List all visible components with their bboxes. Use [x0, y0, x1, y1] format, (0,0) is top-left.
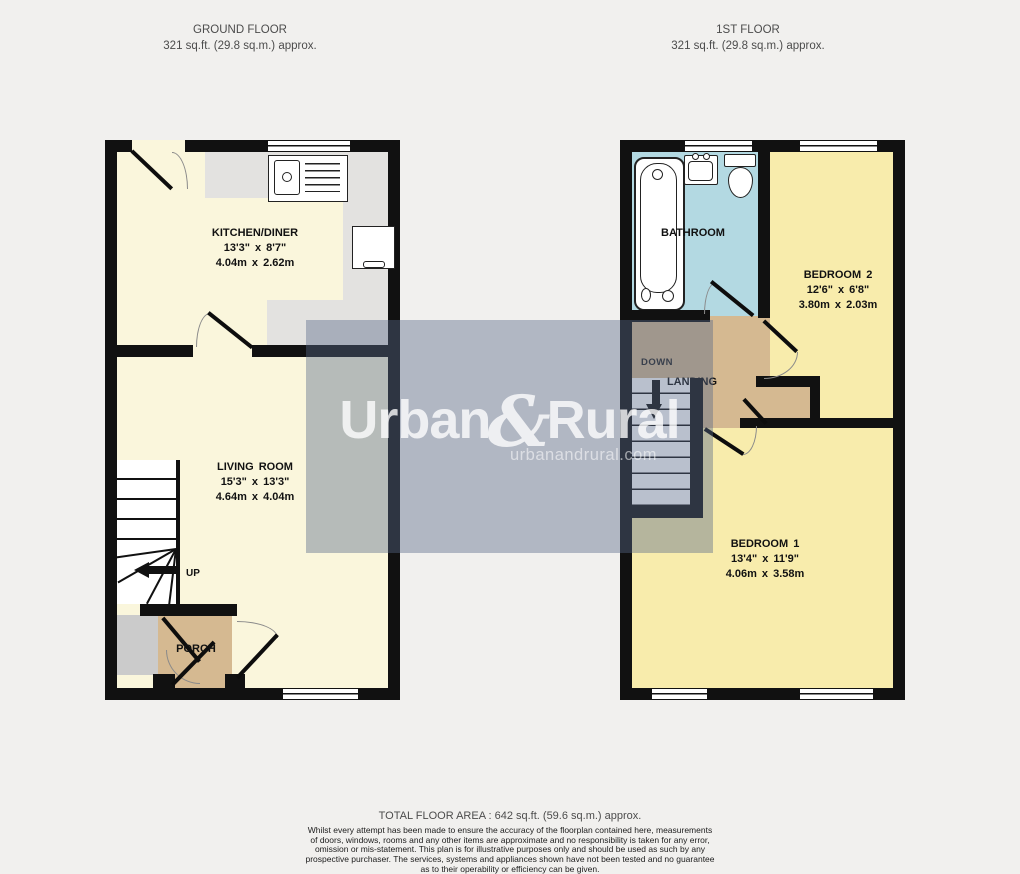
room-size-metric: 3.80m x 2.03m — [770, 298, 906, 313]
bath-tap-icon — [662, 290, 674, 302]
hob-controls-icon — [363, 261, 385, 268]
bedroom2-window — [800, 140, 877, 152]
toilet-cistern-icon — [724, 154, 756, 167]
agency-watermark: Urban&Rural urbanandrural.com — [306, 320, 713, 553]
bath-tap-icon — [641, 288, 651, 302]
sink-drain-icon — [282, 172, 292, 182]
first-floor-header: 1ST FLOOR 321 sq.ft. (29.8 sq.m.) approx… — [598, 22, 898, 54]
bedroom2-vestibule — [758, 387, 810, 418]
bedroom1-window — [800, 688, 873, 700]
kitchen-living-wall — [105, 345, 193, 357]
basin-tap-icon — [703, 153, 710, 160]
brand-text: Rural — [547, 390, 680, 450]
ground-floor-title: GROUND FLOOR — [90, 22, 390, 38]
ground-floor-area: 321 sq.ft. (29.8 sq.m.) approx. — [90, 38, 390, 54]
first-floor-title: 1ST FLOOR — [598, 22, 898, 38]
bathroom-label: BATHROOM — [632, 226, 754, 241]
landing-alcove-wall — [810, 387, 820, 418]
sink-drainer-icon — [305, 163, 340, 192]
basin-tap-icon — [692, 153, 699, 160]
stairs-up-treads — [117, 460, 178, 548]
porch-label: PORCH — [156, 642, 236, 657]
up-label: UP — [186, 566, 216, 581]
bath-plug-icon — [652, 169, 663, 180]
kitchen-label: KITCHEN/DINER 13'3" x 8'7" 4.04m x 2.62m — [175, 226, 335, 271]
porch-top-wall — [140, 604, 237, 616]
basin-bowl-icon — [688, 161, 713, 181]
agency-logo: Urban&Rural — [306, 390, 713, 452]
total-floor-area: TOTAL FLOOR AREA : 642 sq.ft. (59.6 sq.m… — [0, 810, 1020, 822]
understairs-store — [117, 615, 158, 675]
entry-door-opening — [132, 140, 185, 152]
ground-floor-header: GROUND FLOOR 321 sq.ft. (29.8 sq.m.) app… — [90, 22, 390, 54]
room-size-imperial: 12'6" x 6'8" — [770, 283, 906, 298]
disclaimer: Whilst every attempt has been made to en… — [270, 826, 750, 874]
bedroom2-label: BEDROOM 2 12'6" x 6'8" 3.80m x 2.03m — [770, 268, 906, 313]
up-arrow-shaft — [148, 566, 177, 574]
room-name: KITCHEN/DINER — [175, 226, 335, 241]
living-room-window — [283, 688, 358, 700]
first-floor-area: 321 sq.ft. (29.8 sq.m.) approx. — [598, 38, 898, 54]
bedroom1-window — [652, 688, 707, 700]
bathroom-bedroom2-wall — [758, 140, 770, 318]
room-size-imperial: 13'3" x 8'7" — [175, 241, 335, 256]
floorplan-page: GROUND FLOOR 321 sq.ft. (29.8 sq.m.) app… — [0, 0, 1020, 874]
room-size-metric: 4.06m x 3.58m — [685, 567, 845, 582]
kitchen-window — [268, 140, 350, 152]
bathroom-window — [685, 140, 752, 152]
up-arrow-icon — [134, 562, 149, 578]
brand-text: Urban — [339, 390, 490, 450]
room-size-imperial: 13'4" x 11'9" — [685, 552, 845, 567]
disclaimer-line: as to their operability or efficiency ca… — [270, 865, 750, 874]
room-name: BEDROOM 2 — [770, 268, 906, 283]
room-size-metric: 4.04m x 2.62m — [175, 256, 335, 271]
